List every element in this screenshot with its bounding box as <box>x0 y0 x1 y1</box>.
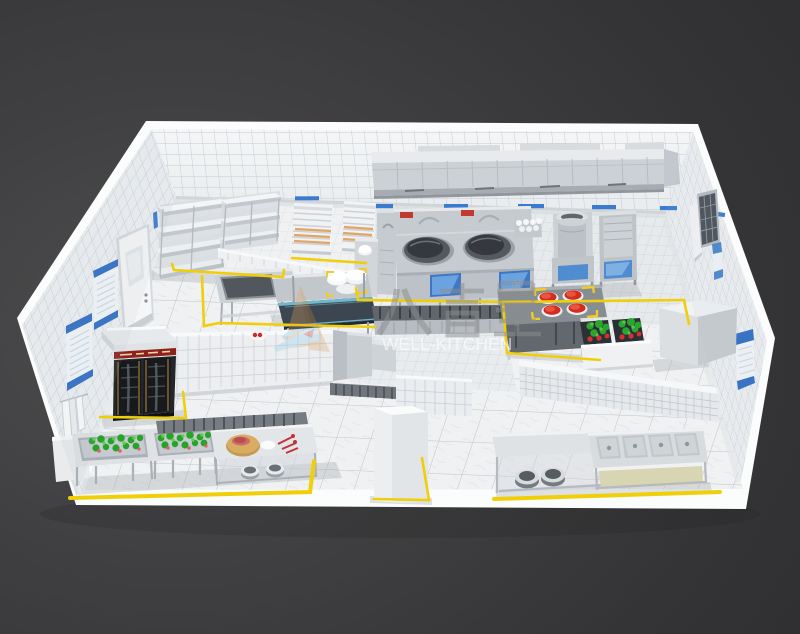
svg-text:®: ® <box>512 277 523 294</box>
svg-text:WELL-KITCHEN: WELL-KITCHEN <box>382 334 512 354</box>
